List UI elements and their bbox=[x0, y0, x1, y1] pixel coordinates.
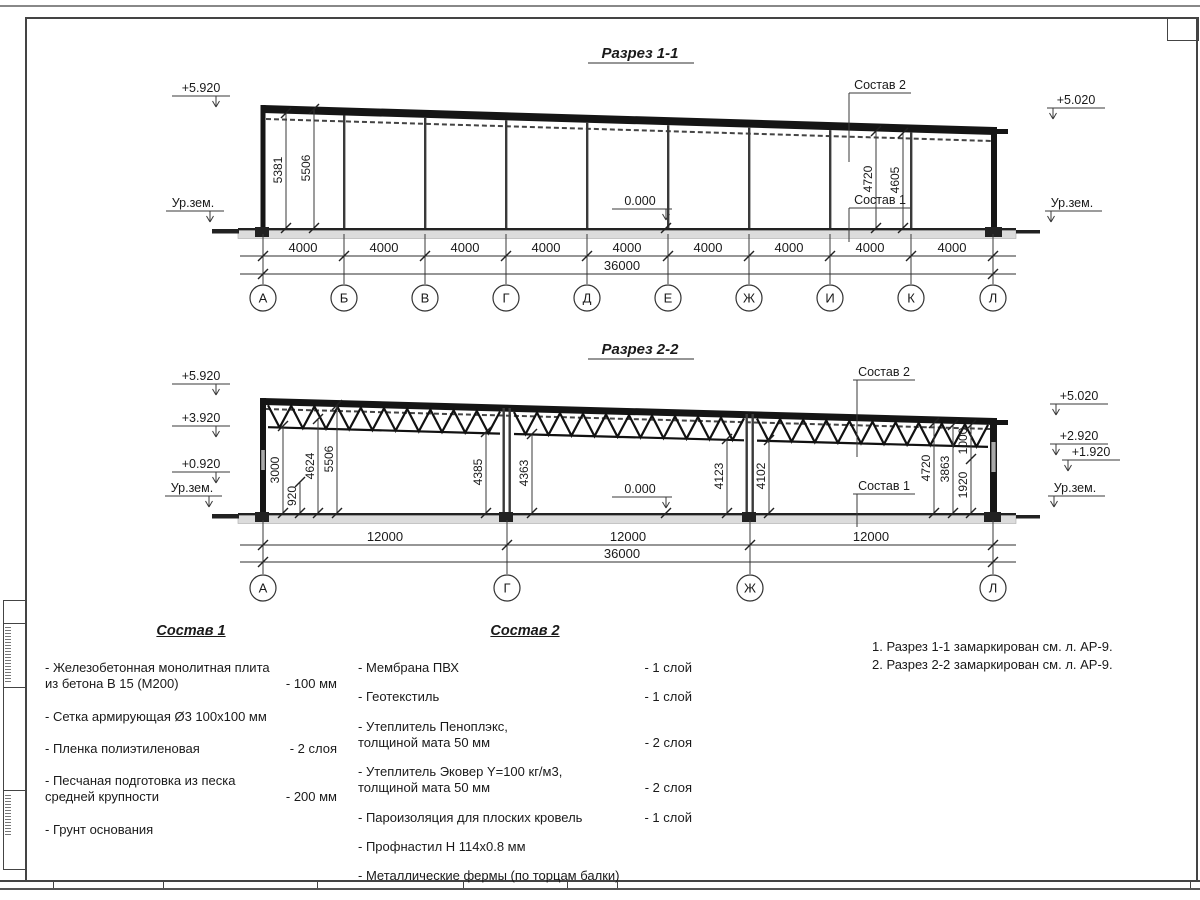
ground-level-label: Ур.зем. bbox=[1051, 196, 1093, 210]
list-item: - Профнастил Н 114х0.8 мм bbox=[358, 839, 692, 855]
column-A-window bbox=[261, 450, 265, 470]
bay-dim: 4000 bbox=[451, 240, 480, 255]
layer-name: - Песчаная подготовка из песка средней к… bbox=[45, 773, 235, 806]
elevation-label: +3.920 bbox=[182, 411, 221, 425]
column-A bbox=[261, 105, 266, 228]
layer-qty: - 1 слой bbox=[636, 660, 692, 676]
bay-dim: 12000 bbox=[610, 529, 646, 544]
layers2-callout: Состав 2 bbox=[858, 365, 910, 379]
column bbox=[829, 130, 831, 228]
elevation-label: +5.020 bbox=[1060, 389, 1099, 403]
dim-label: 4720 bbox=[861, 165, 875, 192]
layer-qty: - 1 слой bbox=[636, 810, 692, 826]
layer-qty: - 2 слоя bbox=[637, 780, 692, 796]
list-item: - Мембрана ПВХ - 1 слой bbox=[358, 660, 692, 676]
bay-dim: 4000 bbox=[289, 240, 318, 255]
list-item: - Утеплитель Эковер Y=100 кг/м3, толщино… bbox=[358, 764, 692, 797]
layers2-heading: Состав 2 bbox=[358, 622, 692, 640]
column-L-window bbox=[991, 442, 995, 472]
zero-level-label: 0.000 bbox=[624, 482, 655, 496]
ground-level-label: Ур.зем. bbox=[171, 481, 213, 495]
total-dim: 36000 bbox=[604, 546, 640, 561]
bay-dim: 4000 bbox=[613, 240, 642, 255]
ground-level-label: Ур.зем. bbox=[172, 196, 214, 210]
layer-name: - Сетка армирующая Ø3 100х100 мм bbox=[45, 709, 267, 725]
ground-stub-left bbox=[212, 514, 239, 519]
bay-dim: 12000 bbox=[367, 529, 403, 544]
grid-label: Б bbox=[340, 291, 349, 306]
zero-level-label: 0.000 bbox=[624, 194, 655, 208]
layer-qty: - 200 мм bbox=[278, 789, 337, 805]
bay-dim: 4000 bbox=[370, 240, 399, 255]
floor-slab bbox=[238, 516, 1016, 524]
column bbox=[424, 118, 426, 228]
ground-stub-right bbox=[1016, 230, 1040, 234]
layers2-callout: Состав 2 bbox=[854, 78, 906, 92]
section-1-1-drawing: Разрез 1-1 5381 5506 4720 4605 +5.9 bbox=[0, 30, 1200, 330]
gost-cell-text-smudge bbox=[5, 627, 11, 683]
ground-level-label: Ур.зем. bbox=[1054, 481, 1096, 495]
section-2-2-title: Разрез 2-2 bbox=[601, 341, 679, 358]
floor-top-line bbox=[238, 228, 1016, 231]
title-strip-tick bbox=[1190, 880, 1191, 888]
dim-label: 920 bbox=[285, 486, 299, 506]
list-item: - Пароизоляция для плоских кровель - 1 с… bbox=[358, 810, 692, 826]
bay-dim: 4000 bbox=[694, 240, 723, 255]
grid-label: В bbox=[421, 291, 430, 306]
column bbox=[505, 120, 507, 228]
title-strip-tick bbox=[163, 880, 164, 888]
column bbox=[586, 123, 588, 228]
list-item: - Железобетонная монолитная плита из бет… bbox=[45, 660, 337, 693]
dim-label: 4123 bbox=[712, 462, 726, 489]
total-dim: 36000 bbox=[604, 258, 640, 273]
layer-name: - Пароизоляция для плоских кровель bbox=[358, 810, 582, 826]
list-item: - Пленка полиэтиленовая - 2 слоя bbox=[45, 741, 337, 757]
grid-label: А bbox=[259, 291, 268, 306]
title-strip-tick bbox=[317, 880, 318, 888]
dim-label: 5506 bbox=[322, 445, 336, 472]
grid-label: Ж bbox=[744, 581, 756, 596]
drawing-sheet: Разрез 1-1 5381 5506 4720 4605 +5.9 bbox=[0, 0, 1200, 900]
grid-label: Е bbox=[664, 291, 673, 306]
dim-label: 4720 bbox=[919, 454, 933, 481]
grid-label: Л bbox=[989, 291, 998, 306]
gost-divider-3 bbox=[3, 790, 25, 791]
elevation-label: +5.920 bbox=[182, 81, 221, 95]
list-item: - Геотекстиль - 1 слой bbox=[358, 689, 692, 705]
layers1-block: Состав 1 - Железобетонная монолитная пли… bbox=[45, 622, 337, 851]
floor-top-line bbox=[238, 513, 1016, 516]
dim-label: 4102 bbox=[754, 462, 768, 489]
section-1-1-title: Разрез 1-1 bbox=[601, 45, 678, 62]
layers2-block: Состав 2 - Мембрана ПВХ - 1 слой - Геоте… bbox=[358, 622, 692, 897]
layer-name: - Мембрана ПВХ bbox=[358, 660, 459, 676]
note-line: 1. Разрез 1-1 замаркирован см. л. АР-9. bbox=[872, 638, 1192, 656]
dim-label: 3000 bbox=[268, 456, 282, 483]
dim-label: 4624 bbox=[303, 452, 317, 479]
grid-bubbles bbox=[250, 285, 1006, 311]
footing bbox=[255, 512, 269, 522]
layer-name: - Пленка полиэтиленовая bbox=[45, 741, 200, 757]
grid-label: Д bbox=[583, 291, 592, 306]
list-item: - Металлические фермы (по торцам балки) bbox=[358, 868, 692, 884]
grid-label: Л bbox=[989, 581, 998, 596]
layer-name: - Геотекстиль bbox=[358, 689, 439, 705]
elevation-label: +5.920 bbox=[182, 369, 221, 383]
dim-label: 1000 bbox=[956, 427, 970, 454]
dim-label: 3863 bbox=[938, 455, 952, 482]
grid-bubbles bbox=[250, 575, 1006, 601]
notes-block: 1. Разрез 1-1 замаркирован см. л. АР-9. … bbox=[872, 638, 1192, 673]
dim-label: 4605 bbox=[888, 166, 902, 193]
layer-qty: - 1 слой bbox=[636, 689, 692, 705]
frame-top bbox=[25, 17, 1197, 19]
column-Zh bbox=[746, 414, 748, 513]
layer-name: - Железобетонная монолитная плита из бет… bbox=[45, 660, 270, 693]
elevation-label: +0.920 bbox=[182, 457, 221, 471]
grid-label: И bbox=[825, 291, 834, 306]
grid-label: Г bbox=[502, 291, 509, 306]
footing bbox=[255, 227, 269, 237]
bay-dim: 4000 bbox=[532, 240, 561, 255]
elevation-label: +5.020 bbox=[1057, 93, 1096, 107]
layer-qty: - 100 мм bbox=[278, 676, 337, 692]
list-item: - Сетка армирующая Ø3 100х100 мм bbox=[45, 709, 337, 725]
dim-label: 4363 bbox=[517, 459, 531, 486]
grid-label: К bbox=[907, 291, 915, 306]
note-line: 2. Разрез 2-2 замаркирован см. л. АР-9. bbox=[872, 656, 1192, 674]
section-2-2-drawing: Разрез 2-2 3000 920 4624 5506 bbox=[0, 330, 1200, 630]
layer-qty: - 2 слоя bbox=[637, 735, 692, 751]
grid-label: Ж bbox=[743, 291, 755, 306]
column bbox=[910, 133, 912, 228]
list-item: - Утеплитель Пеноплэкс, толщиной мата 50… bbox=[358, 719, 692, 752]
ground-stub-right bbox=[1016, 515, 1040, 519]
layer-qty: - 2 слоя bbox=[282, 741, 337, 757]
layer-name: - Профнастил Н 114х0.8 мм bbox=[358, 839, 526, 855]
column bbox=[748, 128, 750, 228]
bay-dim: 4000 bbox=[938, 240, 967, 255]
bay-dim: 12000 bbox=[853, 529, 889, 544]
column bbox=[667, 125, 669, 228]
dim-label: 5506 bbox=[299, 154, 313, 181]
list-item: - Песчаная подготовка из песка средней к… bbox=[45, 773, 337, 806]
column bbox=[343, 115, 345, 228]
layer-name: - Утеплитель Пеноплэкс, толщиной мата 50… bbox=[358, 719, 508, 752]
column-L bbox=[991, 127, 997, 228]
grid-label: Г bbox=[503, 581, 510, 596]
bay-dim: 4000 bbox=[856, 240, 885, 255]
column-G bbox=[509, 408, 511, 513]
grid-label: А bbox=[259, 581, 268, 596]
bay-dim: 4000 bbox=[775, 240, 804, 255]
list-item: - Грунт основания bbox=[45, 822, 337, 838]
gost-cell-text-smudge bbox=[5, 795, 11, 835]
dim-label: 1920 bbox=[956, 471, 970, 498]
dim-label: 5381 bbox=[271, 156, 285, 183]
layers1-callout: Состав 1 bbox=[854, 193, 906, 207]
gost-divider-2 bbox=[3, 687, 25, 688]
elevation-label: +2.920 bbox=[1060, 429, 1099, 443]
layer-name: - Металлические фермы (по торцам балки) bbox=[358, 868, 619, 884]
layer-name: - Грунт основания bbox=[45, 822, 153, 838]
layers1-heading: Состав 1 bbox=[45, 622, 337, 640]
sheet-top-edge bbox=[0, 5, 1200, 7]
elevation-label: +1.920 bbox=[1072, 445, 1111, 459]
layer-name: - Утеплитель Эковер Y=100 кг/м3, толщино… bbox=[358, 764, 562, 797]
title-strip-tick bbox=[53, 880, 54, 888]
ground-stub-left bbox=[212, 229, 239, 234]
dim-label: 4385 bbox=[471, 458, 485, 485]
column-G bbox=[503, 408, 505, 513]
layers1-callout: Состав 1 bbox=[858, 479, 910, 493]
footing bbox=[499, 512, 513, 522]
footing bbox=[742, 512, 756, 522]
